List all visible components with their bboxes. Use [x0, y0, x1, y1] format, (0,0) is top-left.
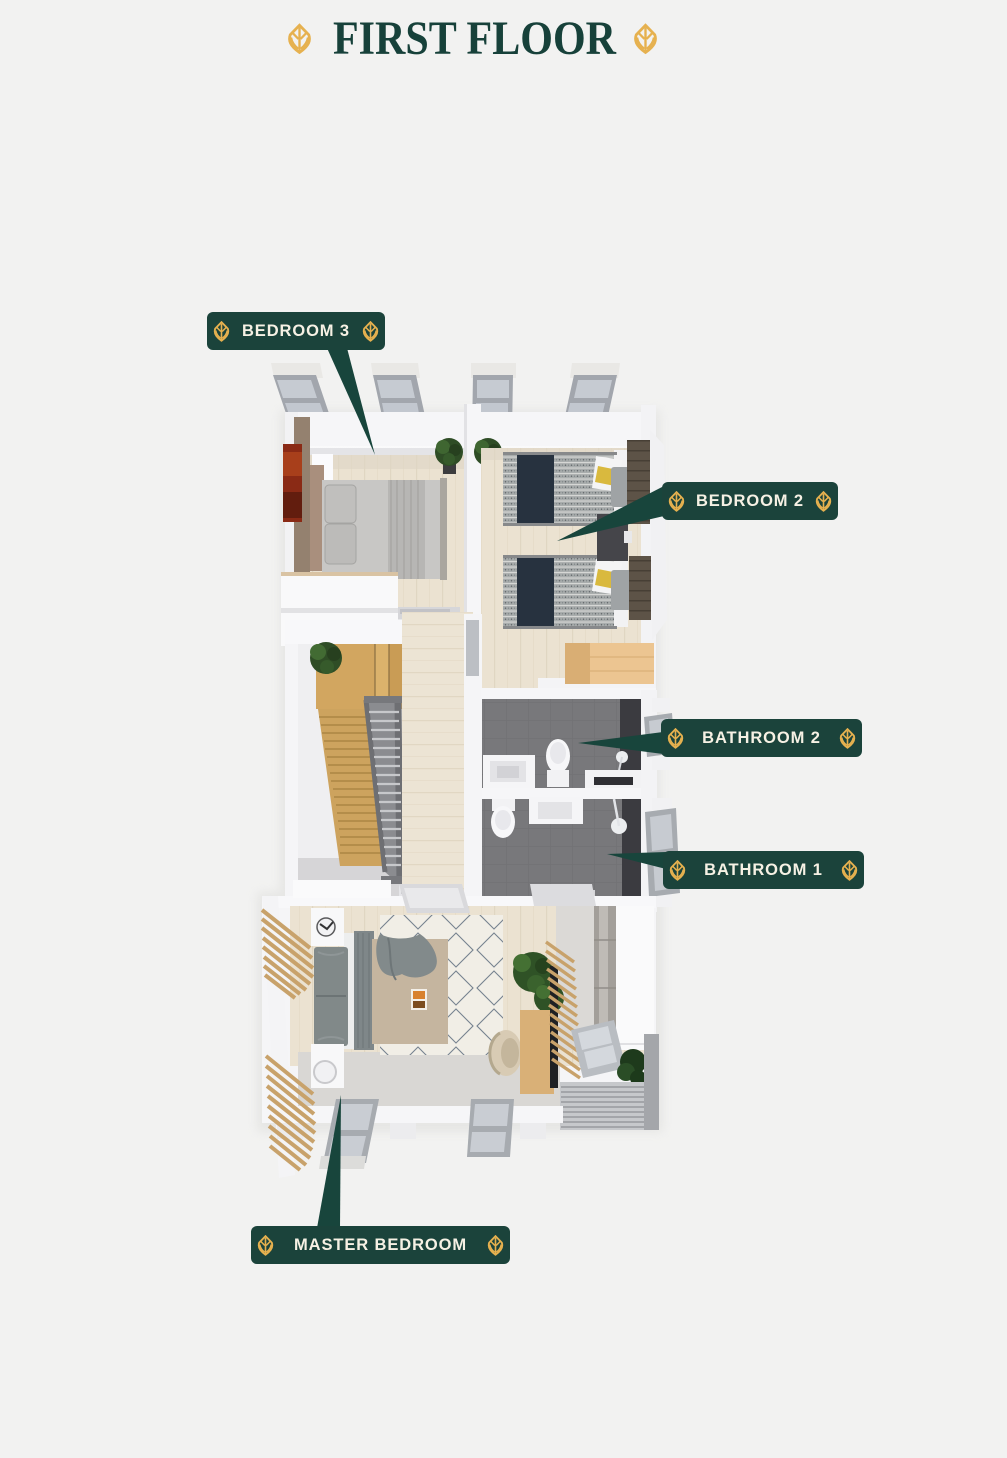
svg-text:FIRST FLOOR: FIRST FLOOR: [333, 12, 617, 65]
